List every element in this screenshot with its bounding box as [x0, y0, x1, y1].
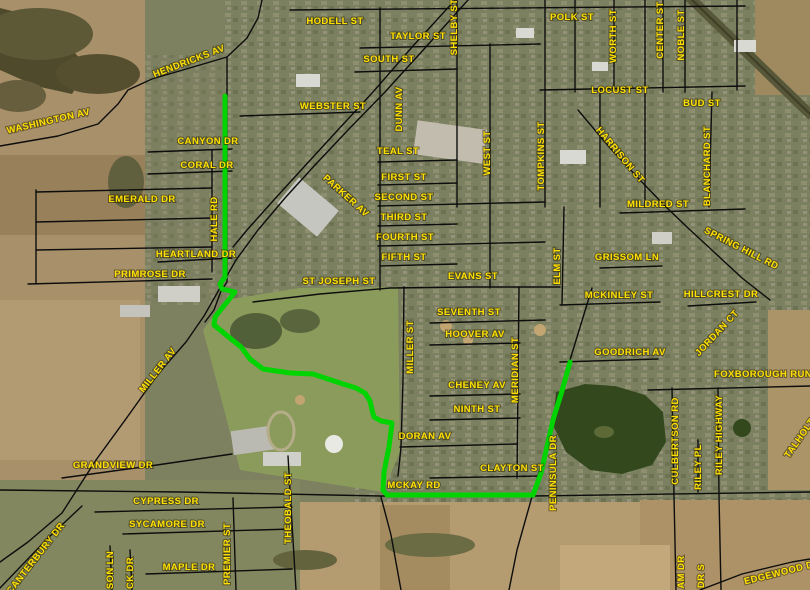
street-label-foxborough-run: FOXBOROUGH RUN [714, 369, 810, 380]
street-label-ninth-st: NINTH ST [453, 404, 500, 415]
street-label-mildred-st: MILDRED ST [627, 199, 689, 210]
street-label-maple-dr: MAPLE DR [163, 562, 216, 573]
street-label-miller-st: MILLER ST [405, 320, 416, 374]
street-label-theobald-st: THEOBALD ST [283, 472, 294, 544]
street-label-locust-st: LOCUST ST [591, 85, 648, 96]
street-label-grissom-ln: GRISSOM LN [595, 252, 659, 263]
street-label-son-ln: SON LN [105, 551, 116, 589]
street-label-primrose-dr: PRIMROSE DR [114, 269, 185, 280]
street-label-culbertson-rd: CULBERTSON RD [670, 397, 681, 485]
street-label-grandview-dr: GRANDVIEW DR [73, 460, 153, 471]
street-label-emerald-dr: EMERALD DR [108, 194, 175, 205]
street-label-hodell-st: HODELL ST [306, 16, 363, 27]
street-label-riley-highway: RILEY HIGHWAY [714, 395, 725, 475]
street-label-dr-s: DR S [696, 564, 707, 588]
street-label-south-st: SOUTH ST [363, 54, 414, 65]
street-label-premier-st: PREMIER ST [222, 523, 233, 585]
street-label-center-st: CENTER ST [655, 1, 666, 58]
street-label-mckay-rd: MCKAY RD [387, 480, 440, 491]
street-label-heartland-dr: HEARTLAND DR [156, 249, 236, 260]
street-label-clayton-st: CLAYTON ST [480, 463, 544, 474]
street-label-bud-st: BUD ST [683, 98, 721, 109]
street-label-evans-st: EVANS ST [448, 271, 498, 282]
street-label-doran-av: DORAN AV [399, 431, 452, 442]
street-label-peninsula-dr: PENINSULA DR [548, 435, 559, 511]
street-label-coral-dr: CORAL DR [180, 160, 233, 171]
street-label-west-st: WEST ST [482, 130, 493, 175]
street-label-st-joseph-st: ST JOSEPH ST [303, 276, 376, 287]
street-label-shelby-st: SHELBY ST [449, 0, 460, 55]
street-label-hillcrest-dr: HILLCREST DR [684, 289, 758, 300]
street-label-meridian-st: MERIDIAN ST [510, 337, 521, 403]
street-label-cypress-dr: CYPRESS DR [133, 496, 199, 507]
street-label-sycamore-dr: SYCAMORE DR [129, 519, 205, 530]
aerial-map-canvas[interactable]: WASHINGTON AVHENDRICKS AVHODELL STTAYLOR… [0, 0, 810, 590]
aerial-map-view[interactable]: WASHINGTON AVHENDRICKS AVHODELL STTAYLOR… [0, 0, 810, 590]
street-label-webster-st: WEBSTER ST [300, 101, 366, 112]
street-label-cheney-av: CHENEY AV [448, 380, 506, 391]
street-label-hale-rd: HALE RD [209, 196, 220, 241]
street-label-elm-st: ELM ST [552, 247, 563, 284]
street-label-dunn-av: DUNN AV [394, 86, 405, 131]
street-label-third-st: THIRD ST [380, 212, 427, 223]
street-label-riley-pl: RILEY PL [693, 444, 704, 490]
street-label-tompkins-st: TOMPKINS ST [536, 121, 547, 190]
street-label-first-st: FIRST ST [381, 172, 426, 183]
street-label-blanchard-st: BLANCHARD ST [702, 126, 713, 206]
street-label-canyon-dr: CANYON DR [177, 136, 238, 147]
street-label-fifth-st: FIFTH ST [382, 252, 427, 263]
street-label-taylor-st: TAYLOR ST [390, 31, 446, 42]
street-label-goodrich-av: GOODRICH AV [594, 347, 666, 358]
street-label-hoover-av: HOOVER AV [445, 329, 505, 340]
street-label-fourth-st: FOURTH ST [376, 232, 434, 243]
street-label-teal-st: TEAL ST [377, 146, 419, 157]
street-label-am-dr: AM DR [676, 555, 687, 588]
street-label-second-st: SECOND ST [374, 192, 433, 203]
street-label-noble-st: NOBLE ST [676, 9, 687, 60]
street-label-mckinley-st: MCKINLEY ST [585, 290, 654, 301]
street-label-ck-dr: CK DR [125, 557, 136, 589]
street-label-worth-st: WORTH ST [608, 9, 619, 63]
street-label-seventh-st: SEVENTH ST [437, 307, 501, 318]
street-label-polk-st: POLK ST [550, 12, 594, 23]
